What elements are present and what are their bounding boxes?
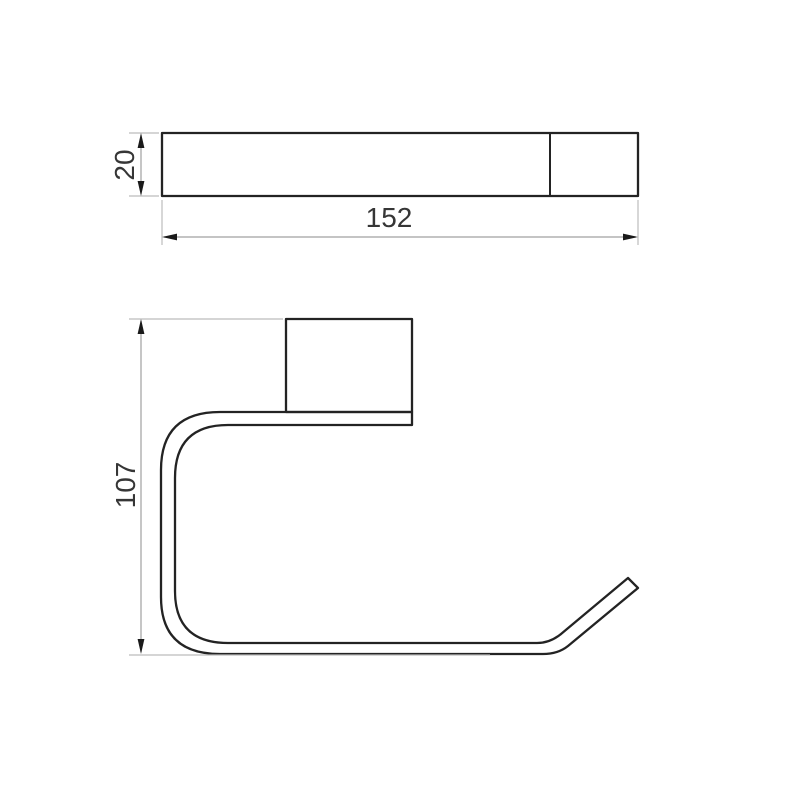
bar-width-dimension-label: 152 (366, 202, 413, 233)
height-dimension-107: 107 (110, 319, 490, 655)
arrowhead-left-icon (162, 234, 177, 241)
technical-drawing-canvas: 20 152 (0, 0, 800, 800)
front-view: 107 (110, 319, 638, 655)
arrowhead-down-icon (138, 639, 145, 654)
top-view: 20 152 (109, 133, 638, 245)
mounting-block-outline (286, 319, 412, 412)
holder-band-outline (161, 412, 638, 654)
height-dimension-20: 20 (109, 133, 159, 196)
arrowhead-right-icon (623, 234, 638, 241)
holder-height-dimension-label: 107 (110, 462, 141, 509)
technical-drawing-page: 20 152 (0, 0, 800, 800)
arrowhead-up-icon (138, 133, 145, 148)
bar-height-dimension-label: 20 (109, 149, 140, 180)
arrowhead-down-icon (138, 181, 145, 196)
arrowhead-up-icon (138, 319, 145, 334)
width-dimension-152: 152 (162, 200, 638, 245)
bar-outline (162, 133, 638, 196)
